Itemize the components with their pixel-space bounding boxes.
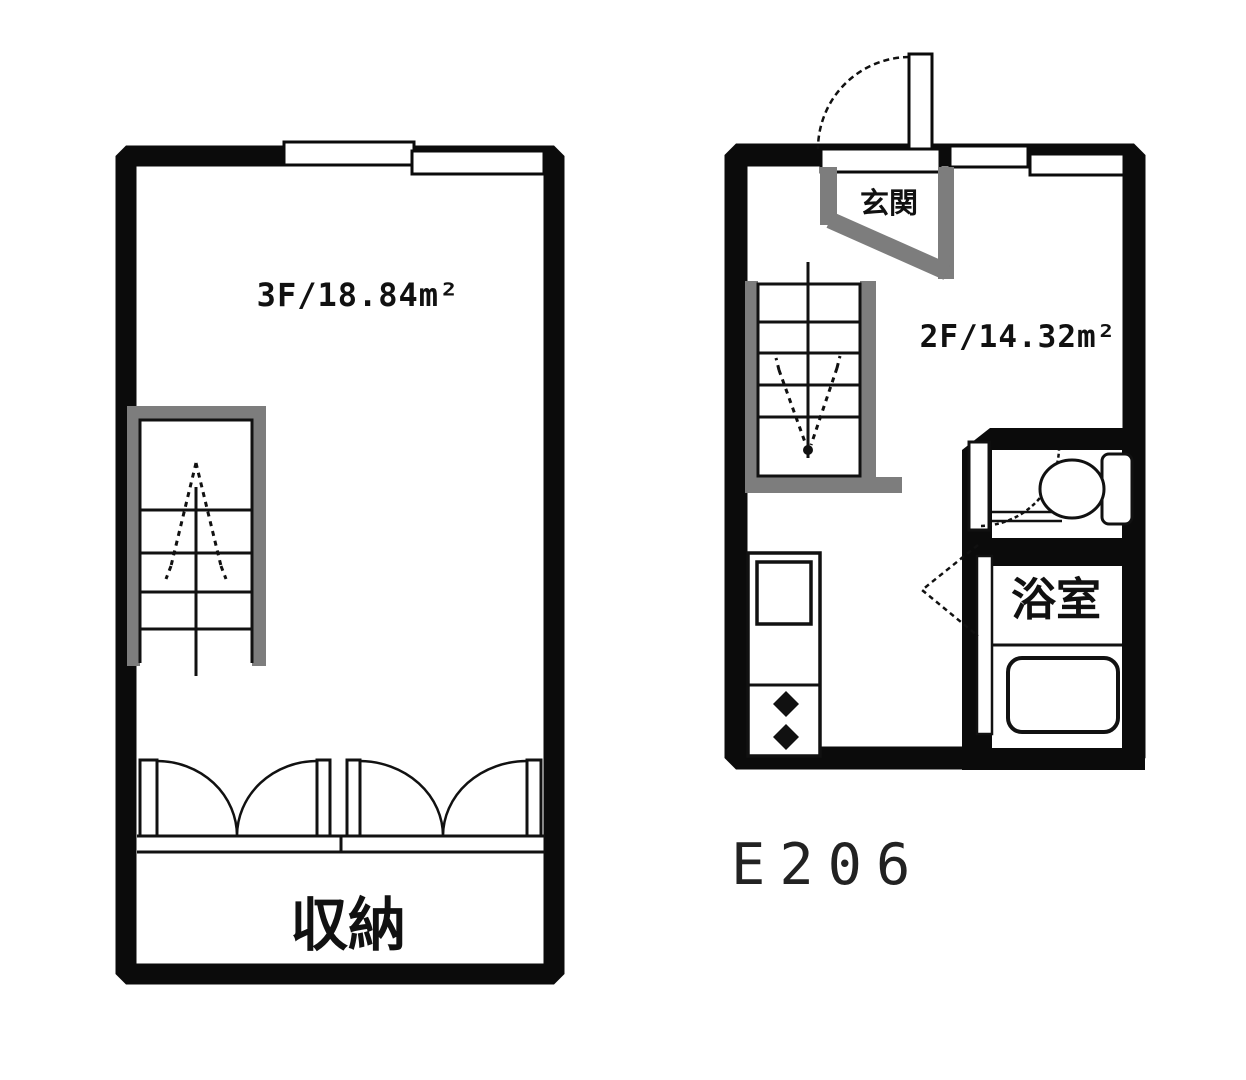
floorplan-drawing: 3F/18.84m² 収納 (0, 0, 1246, 1080)
entrance-door-swing-arc (818, 57, 909, 149)
door-jamb (347, 760, 360, 836)
unit-number-label: E206 (731, 832, 924, 898)
entrance-label: 玄関 (860, 186, 918, 220)
stair-rail-top (127, 406, 266, 420)
bathtub-icon (1008, 658, 1118, 732)
toilet-door-leaf (969, 442, 989, 530)
door-jamb (317, 760, 330, 836)
kitchen-unit-icon (748, 553, 820, 756)
sanitary-block: 浴室 (962, 428, 1145, 770)
entrance-door-leaf (909, 54, 932, 152)
floor3-stairs-icon (127, 406, 266, 676)
toilet-icon (1040, 454, 1132, 524)
floor2-area-label: 2F/14.32m² (920, 319, 1117, 355)
window-pane-left (284, 142, 414, 165)
stair-rail-right (252, 414, 266, 666)
kitchen-sink (757, 562, 811, 624)
door-jamb (527, 760, 541, 836)
floor2-plan: 玄関 2F/14.32m² (736, 54, 1145, 770)
floor3-plan: 3F/18.84m² 収納 (126, 142, 554, 974)
stair-rail-bottom (745, 477, 902, 493)
toilet-bowl (1040, 460, 1104, 518)
stair-rail-left (127, 406, 140, 666)
floor3-storage-label: 収納 (290, 891, 406, 959)
stair-rail-right (860, 281, 876, 481)
floorplan-canvas: 3F/18.84m² 収納 (0, 0, 1246, 1080)
window-pane-right (1030, 154, 1124, 175)
bathroom-label: 浴室 (1011, 573, 1101, 626)
floor3-area-label: 3F/18.84m² (257, 276, 460, 314)
bathroom-door-leaf (977, 556, 992, 734)
toilet-tank (1102, 454, 1132, 524)
entrance-threshold (821, 149, 940, 172)
window-pane-left (950, 146, 1028, 167)
stair-arrow-head (803, 445, 813, 455)
entrance-door-icon (818, 54, 940, 172)
door-jamb (140, 760, 157, 836)
stair-rail-left (745, 281, 758, 481)
window-pane-right (412, 151, 544, 174)
